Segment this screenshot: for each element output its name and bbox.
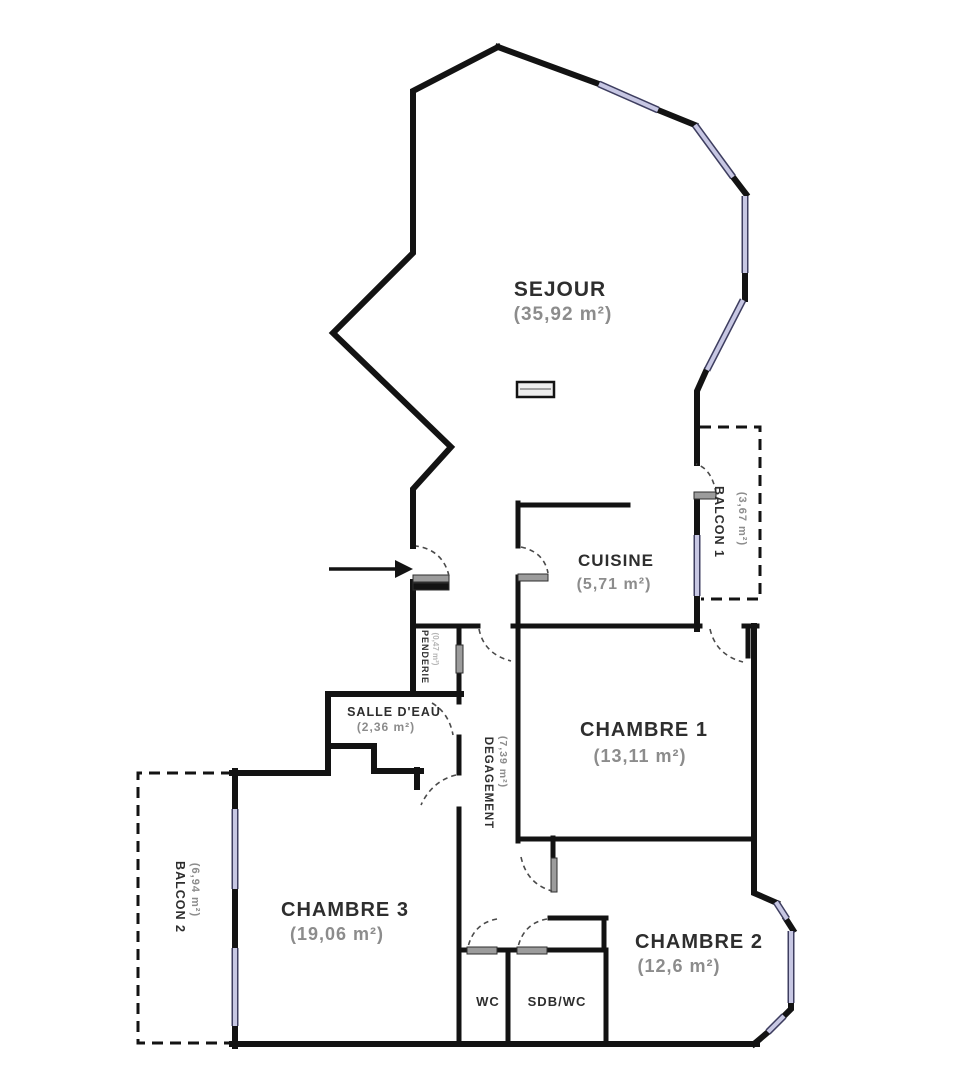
balcon1-outline	[700, 427, 760, 599]
door-entry-leaf	[413, 575, 449, 582]
label-cuisine-area: (5,71 m²)	[577, 576, 652, 593]
label-chambre1-area: (13,11 m²)	[593, 746, 686, 766]
door-sdb-leaf	[517, 947, 547, 954]
radiator-symbol	[517, 382, 554, 397]
arc-wc	[468, 919, 497, 947]
window-sejour-2	[695, 125, 733, 177]
label-balcon2-area: (6,94 m²)	[189, 863, 201, 917]
label-balcon2: BALCON 2	[173, 861, 187, 933]
label-sejour: SEJOUR	[514, 278, 606, 301]
floor-plan-page: SEJOUR (35,92 m²) CUISINE (5,71 m²) CHAM…	[0, 0, 961, 1080]
exterior-walls	[232, 47, 793, 1046]
label-balcon1-area: (3,67 m²)	[736, 492, 748, 546]
label-degagement-area: (7,39 m²)	[497, 736, 509, 788]
label-cuisine: CUISINE	[578, 551, 654, 570]
window-sejour-1	[599, 84, 658, 110]
door-penderie-leaf	[456, 645, 463, 673]
label-penderie: PENDERIE	[420, 630, 430, 684]
arc-sdb	[518, 919, 547, 947]
arc-chambre1	[710, 629, 743, 662]
label-balcon1: BALCON 1	[712, 486, 726, 558]
arc-degagement	[479, 629, 511, 661]
label-chambre2-area: (12,6 m²)	[637, 956, 720, 976]
label-salle-eau: SALLE D'EAU	[347, 705, 441, 719]
door-entry-stub	[413, 583, 449, 590]
arc-cuisine	[521, 547, 548, 573]
door-chambre2-leaf	[551, 858, 557, 892]
label-sejour-area: (35,92 m²)	[514, 304, 613, 325]
window-chambre2-3	[768, 1016, 784, 1032]
arc-chambre2	[521, 857, 552, 891]
label-sdb: SDB/WC	[528, 994, 587, 1009]
entrance-arrow	[329, 560, 413, 578]
windows-outer	[235, 84, 791, 1032]
arc-chambre3	[421, 775, 456, 805]
label-salle-eau-area: (2,36 m²)	[357, 720, 415, 734]
label-chambre1: CHAMBRE 1	[580, 719, 708, 741]
floor-plan: SEJOUR (35,92 m²) CUISINE (5,71 m²) CHAM…	[0, 0, 961, 1080]
door-cuisine-leaf	[518, 574, 548, 581]
window-sejour-4	[707, 300, 743, 370]
arc-entry	[416, 546, 449, 576]
label-chambre2: CHAMBRE 2	[635, 931, 763, 953]
label-degagement: DEGAGEMENT	[482, 737, 494, 829]
label-wc: WC	[476, 994, 500, 1009]
label-penderie-area: (0,47 m²)	[431, 633, 440, 666]
label-chambre3: CHAMBRE 3	[281, 899, 409, 921]
door-wc-leaf	[467, 947, 497, 954]
label-chambre3-area: (19,06 m²)	[290, 924, 384, 944]
windows-glass	[235, 84, 791, 1032]
